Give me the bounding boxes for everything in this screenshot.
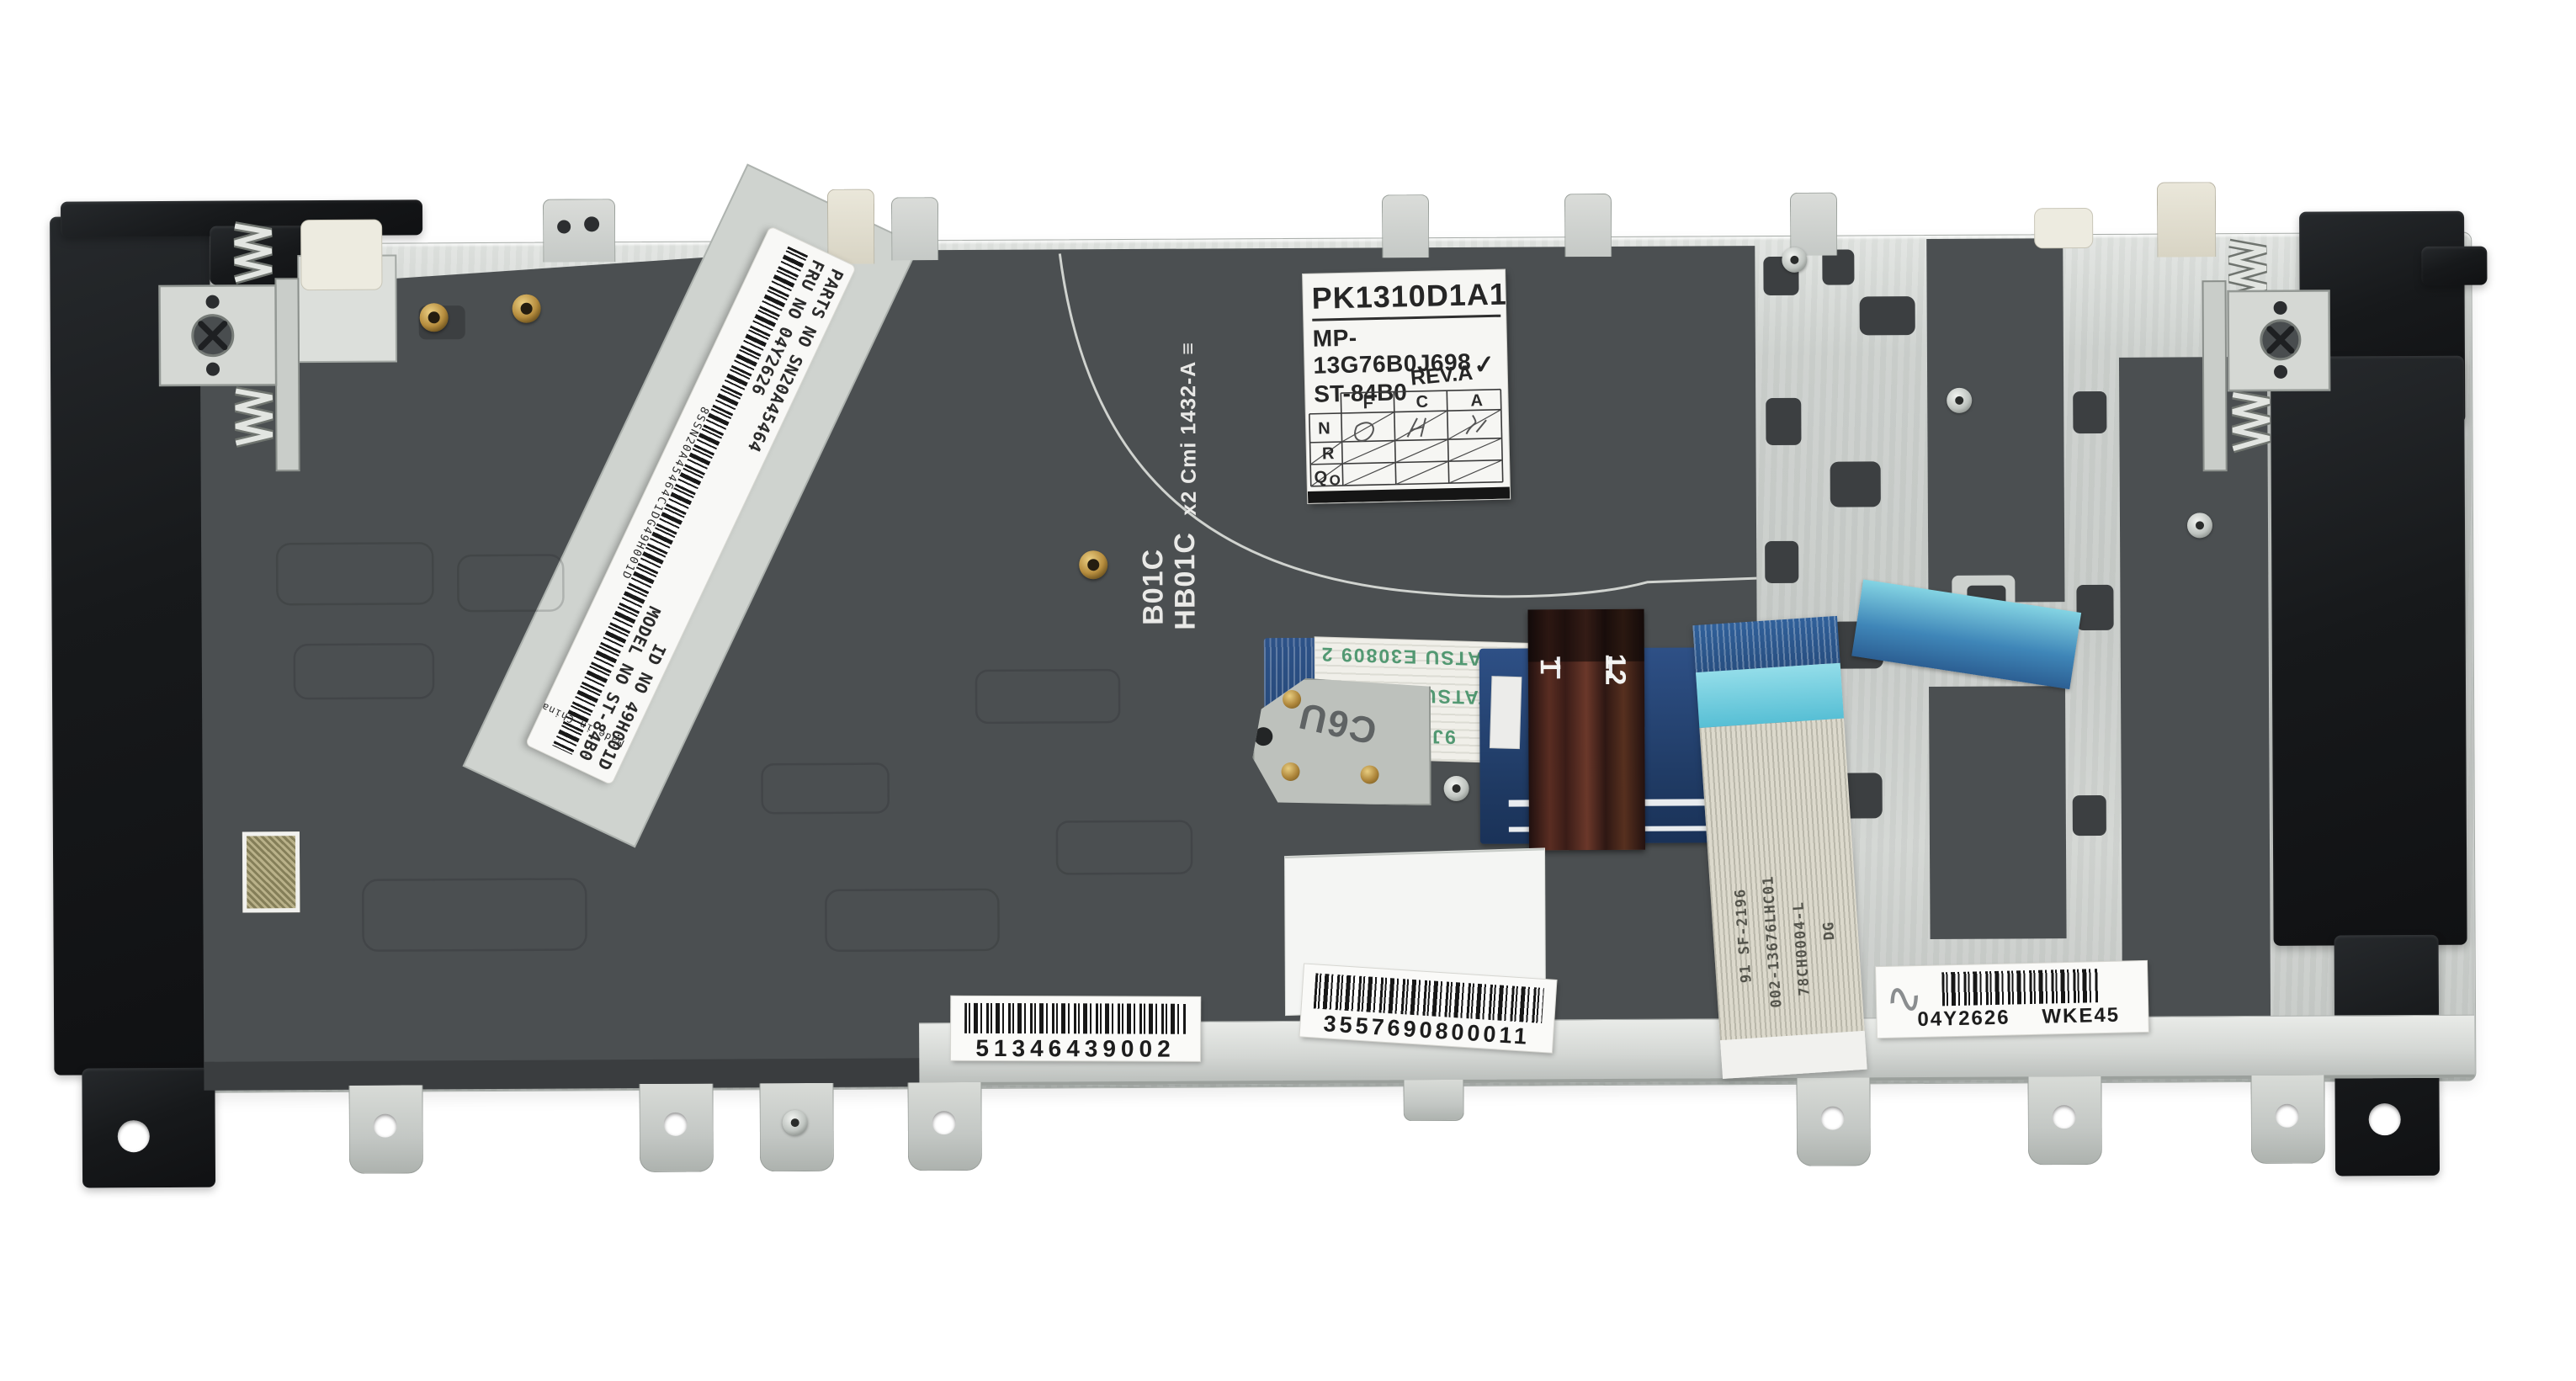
top-tab xyxy=(1790,193,1837,256)
check-mark: ✓ xyxy=(1472,350,1495,380)
tab-hole xyxy=(932,1111,956,1134)
film-band-far-right xyxy=(2119,357,2271,1049)
mount-tab-small xyxy=(1403,1080,1463,1121)
cable-marking: DG xyxy=(1820,921,1838,941)
brown-flex-connector: 1 12 xyxy=(1528,609,1645,851)
tab-hole xyxy=(2276,1104,2299,1128)
right-hinge-mechanism xyxy=(2202,243,2329,471)
grid-row: O xyxy=(1329,472,1341,488)
cable-cyan-band xyxy=(1696,663,1844,728)
tab-screw xyxy=(783,1110,808,1135)
mini-white-sticker xyxy=(1490,677,1521,748)
keyboard-assembly-photo: B01C HB01C x2 Cmi 1432-A ≡ PK1310D1A15 M… xyxy=(0,0,2576,1381)
label-inspection-grid: F C A N R Q O xyxy=(1305,386,1508,491)
film-band-right-upper xyxy=(1926,238,2064,603)
cable-body: 91 SF-2196 002-13676LHC01 78CH0004-L DG xyxy=(1699,719,1864,1041)
serial-barcode-label-left: 51346439002 xyxy=(951,996,1200,1061)
mount-tab xyxy=(1796,1077,1871,1166)
top-tab xyxy=(1382,194,1429,258)
mount-tab xyxy=(639,1084,714,1172)
mount-tab xyxy=(348,1085,423,1173)
top-tab-double-hole xyxy=(543,199,615,262)
grid-row: N xyxy=(1318,419,1330,438)
mount-tab xyxy=(2250,1076,2325,1164)
brass-screw xyxy=(1281,762,1299,781)
silver-rivet xyxy=(1782,247,1807,273)
cable-elbow xyxy=(1851,579,2081,689)
brass-eyelet xyxy=(1079,550,1107,579)
silver-rivet xyxy=(1444,776,1469,801)
fru-barcode-label-right: ∿ 04Y2626 WKE45 xyxy=(1876,961,2148,1038)
ribbon-stamp-row: TATSU E30809 2 xyxy=(1320,643,1494,671)
barcode xyxy=(1941,969,2099,1006)
film-code-bottom: HB01C xyxy=(1169,532,1203,630)
tab-hole xyxy=(584,216,599,231)
tab-hole xyxy=(557,220,571,233)
brass-screw xyxy=(1360,765,1378,783)
label-part-number: PK1310D1A15 xyxy=(1311,277,1500,321)
top-tab-plastic xyxy=(827,189,874,264)
cable-marking: 78CH0004-L xyxy=(1790,901,1813,996)
grid-row: Q xyxy=(1314,468,1327,486)
pin-number-last: 12 xyxy=(1598,653,1631,685)
barcode-digits: 51346439002 xyxy=(951,1035,1200,1063)
cable-marking: 91 SF-2196 xyxy=(1732,888,1755,983)
bracket-stamp: C6U xyxy=(1294,693,1381,752)
grid-col: A xyxy=(1470,391,1483,410)
brass-screw xyxy=(1283,690,1301,709)
tab-hole xyxy=(664,1113,688,1136)
stamped-bracket: C6U xyxy=(1252,677,1431,806)
pin-number-first: 1 xyxy=(1533,658,1566,674)
tab-hole xyxy=(1821,1107,1845,1130)
top-tab-plastic xyxy=(2157,182,2216,257)
handwritten-marks xyxy=(1355,415,1487,441)
silver-rivet xyxy=(1947,388,1972,413)
tab-hole xyxy=(2053,1105,2076,1129)
top-tab xyxy=(891,197,938,260)
cable-main: 91 SF-2196 002-13676LHC01 78CH0004-L DG xyxy=(1692,616,1867,1079)
mount-tab xyxy=(759,1083,834,1171)
brass-eyelet xyxy=(420,303,449,332)
barcode-station: WKE45 xyxy=(2042,1004,2120,1029)
mount-tab xyxy=(907,1082,982,1171)
barcode-code: 04Y2626 xyxy=(1917,1007,2010,1032)
film-code-top: B01C xyxy=(1137,549,1170,625)
plastic-guide-block xyxy=(2034,208,2093,248)
tab-hole xyxy=(374,1114,397,1138)
barcode xyxy=(964,1003,1187,1034)
grid-row: R xyxy=(1322,444,1335,463)
speckle-inspection-sticker xyxy=(242,831,300,912)
brass-eyelet xyxy=(513,295,541,323)
silver-rivet xyxy=(2187,513,2212,538)
cable-marking: 002-13676LHC01 xyxy=(1760,875,1785,1008)
type-label: PK1310D1A15 MP-13G76B0J698 ST-84B0 REV.A… xyxy=(1303,270,1510,503)
screenshot-root: { "photo": { "subject": "Laptop keyboard… xyxy=(0,0,2576,1374)
plastic-guide-block xyxy=(300,220,382,291)
film-qty-mark: x2 Cmi 1432-A ≡ xyxy=(1176,342,1202,516)
mount-tab xyxy=(2027,1076,2102,1165)
grid-col: F xyxy=(1362,394,1373,412)
grid-col: C xyxy=(1415,393,1428,412)
top-tab xyxy=(1564,194,1612,257)
